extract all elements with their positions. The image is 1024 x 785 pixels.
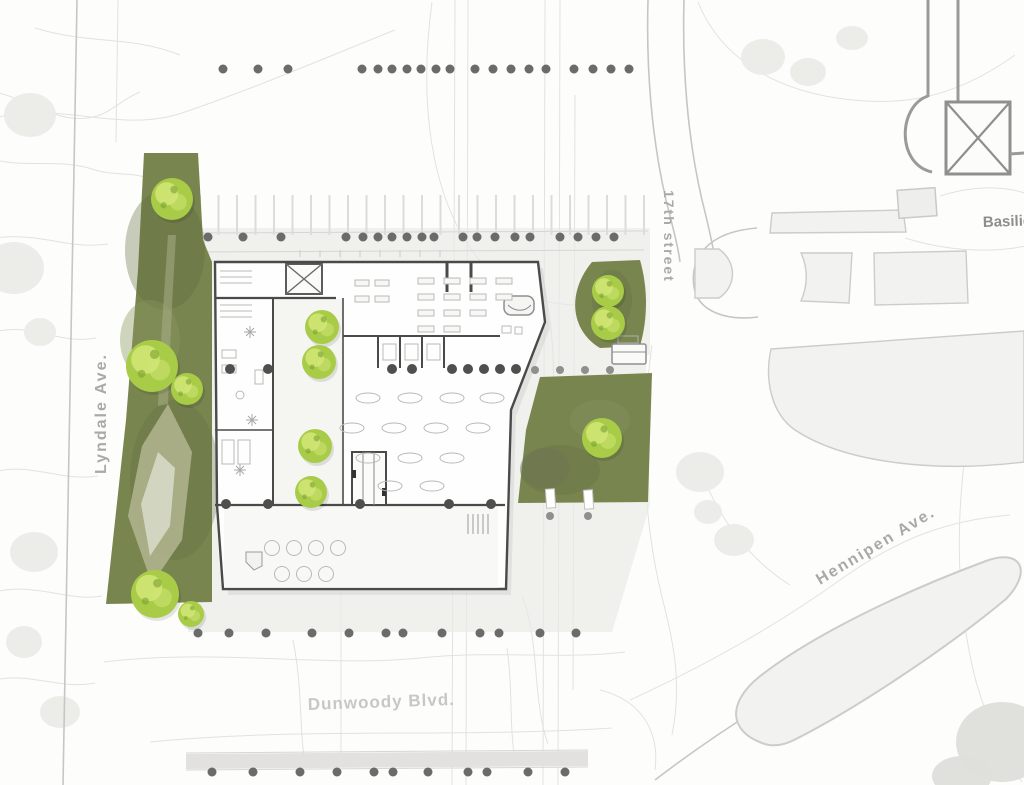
median-island [695,249,733,298]
crosswalk-bar [583,490,593,510]
block-shape-2 [874,251,968,305]
block-shape-1 [801,253,852,303]
block-shape-3 [770,210,906,233]
lower-hall-floor [224,506,498,588]
site-plan-canvas: Lyndale Ave. 17th street Basilica Hennip… [0,0,1024,785]
small-building-footprint [897,188,937,219]
basilica-label: Basilica [983,212,1024,231]
stair-core [286,264,322,294]
building [215,262,545,589]
seventeenth-street-label: 17th street [661,190,677,283]
crosswalk-bar [545,489,555,509]
site-plan: Lyndale Ave. 17th street Basilica Hennip… [0,0,1024,785]
street-band [186,751,588,769]
lyndale-ave-label: Lyndale Ave. [93,353,110,474]
